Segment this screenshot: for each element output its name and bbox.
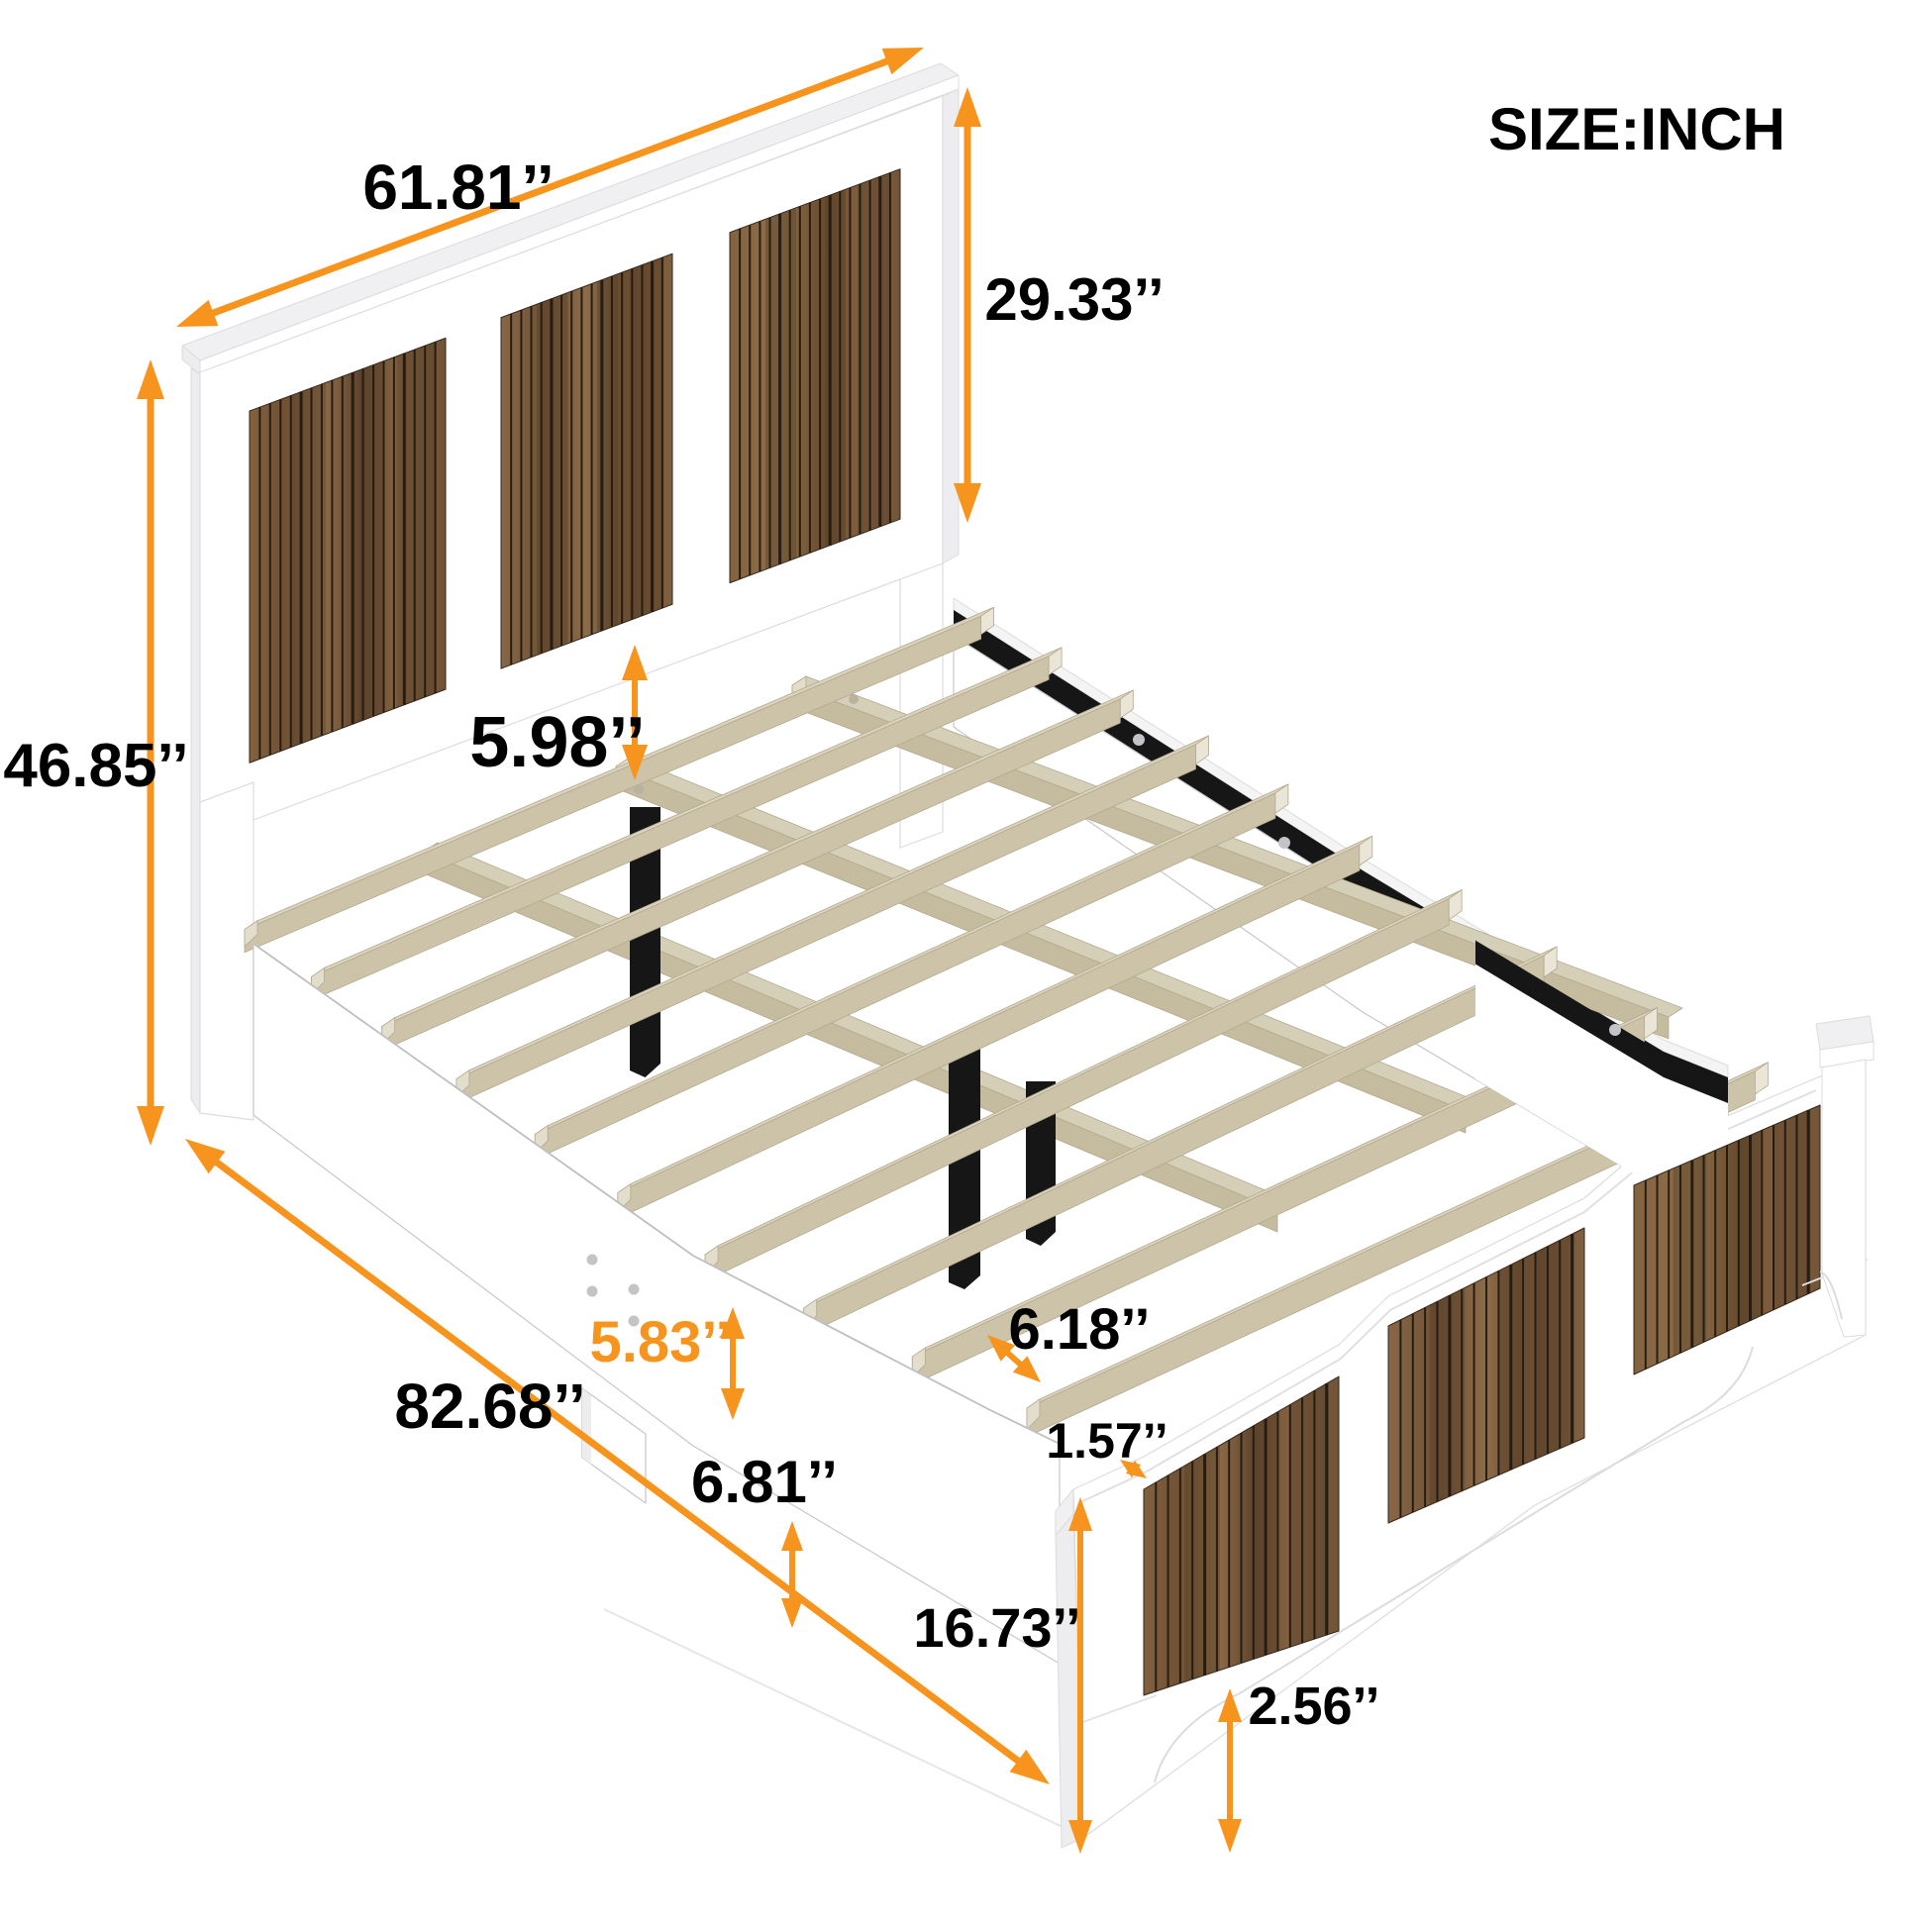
svg-text:6.81’’: 6.81’’ (691, 1449, 838, 1515)
svg-text:61.81’’: 61.81’’ (362, 152, 554, 223)
svg-text:46.85’’: 46.85’’ (3, 732, 188, 800)
svg-text:6.18’’: 6.18’’ (1009, 1297, 1151, 1362)
svg-text:16.73’’: 16.73’’ (913, 1596, 1080, 1659)
svg-text:29.33’’: 29.33’’ (984, 266, 1164, 333)
svg-text:82.68’’: 82.68’’ (394, 1371, 585, 1442)
svg-text:1.57’’: 1.57’’ (1046, 1413, 1167, 1469)
svg-text:5.83’’: 5.83’’ (590, 1310, 732, 1374)
svg-text:2.56’’: 2.56’’ (1248, 1677, 1379, 1736)
svg-text:SIZE:INCH: SIZE:INCH (1488, 96, 1785, 162)
svg-text:5.98’’: 5.98’’ (469, 703, 645, 782)
